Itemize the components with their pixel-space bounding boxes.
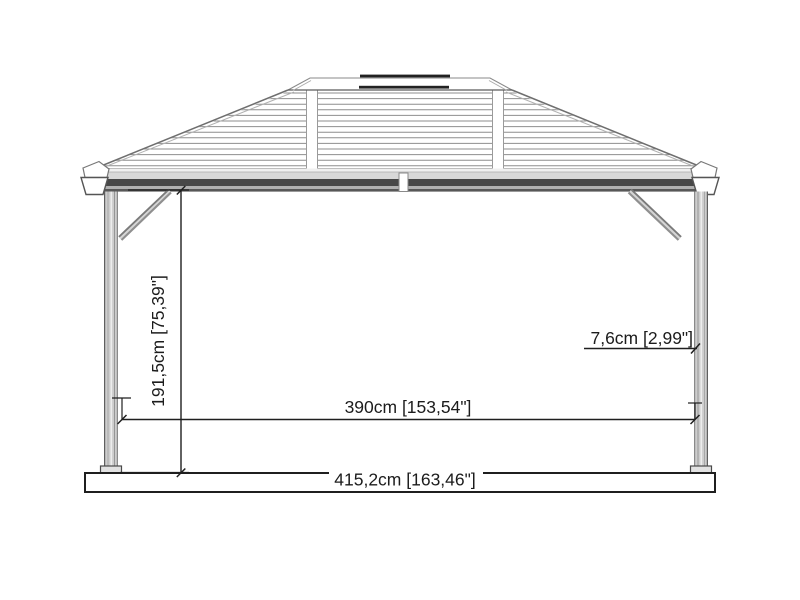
roof-trim-strip-right [493,89,504,171]
dimension-post-width: 7,6cm [2,99"] [584,328,700,354]
brace-left-line-2 [120,191,170,239]
brace-left-line-1 [119,190,169,238]
eave-end-cap-left [81,162,109,195]
brace-right-line-2 [630,191,680,239]
main-roof [95,89,705,171]
dim-inner-width-label: 390cm [153,54"] [345,397,472,417]
corner-brace-right [629,190,682,241]
vent-slat-lower [359,86,449,89]
dimension-inner-width: 390cm [153,54"] [112,397,702,424]
vent-slat-upper [360,75,450,78]
brace-left-line-3 [122,193,172,241]
dim-height-label: 191,5cm [75,39"] [148,275,168,407]
brace-right-line-3 [629,193,679,241]
post-left [101,192,122,474]
corner-brace-left [119,190,171,241]
dim-total-width-label: 415,2cm [163,46"] [334,470,475,490]
fascia-center-connector [399,173,408,192]
end-cap-left-lower [81,178,108,195]
eave-fascia-beam [95,169,705,192]
brace-right-line-1 [631,190,681,238]
post-right [691,192,712,474]
eave-end-cap-right [691,162,719,195]
roof-outline [95,90,705,169]
technical-drawing-page: 390cm [153,54"] 415,2cm [163,46"] 191,5c… [0,0,800,600]
fascia-top-strip [95,169,705,173]
gazebo-elevation-drawing: 390cm [153,54"] 415,2cm [163,46"] 191,5c… [0,0,800,600]
roof-vent-cap [288,75,512,91]
roof-trim-strip-left [307,89,318,171]
dimension-total-width: 415,2cm [163,46"] [329,466,483,490]
dim-post-width-label: 7,6cm [2,99"] [590,328,693,348]
